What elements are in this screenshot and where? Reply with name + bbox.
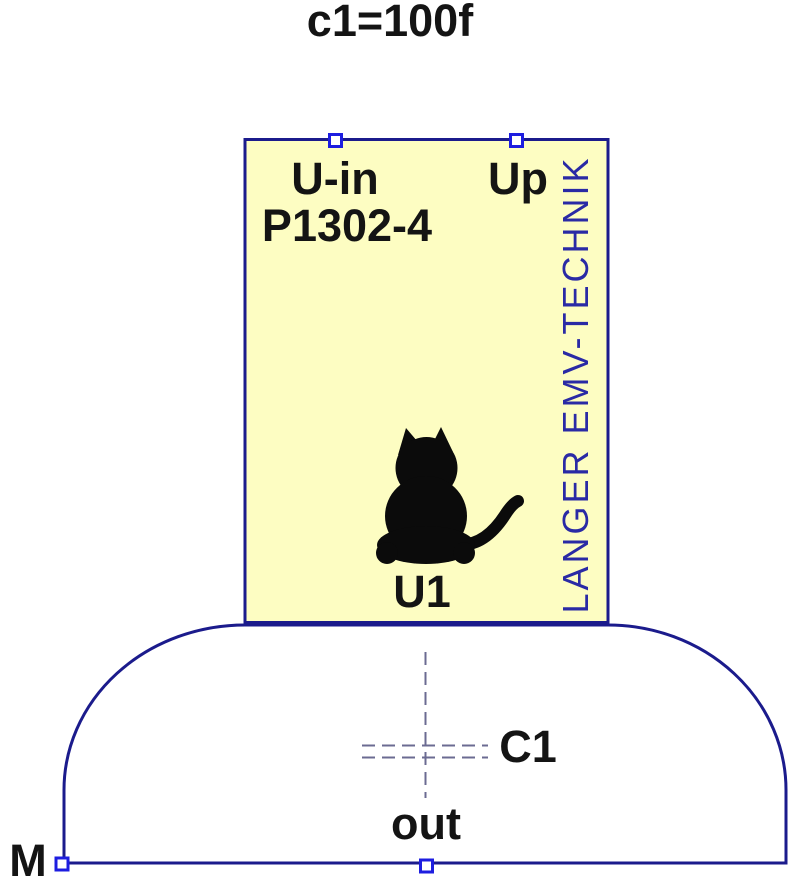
- pin-ground-m[interactable]: [56, 858, 68, 870]
- pin-up[interactable]: [511, 135, 523, 147]
- pin-out[interactable]: [421, 860, 433, 872]
- input-pin-label: U-in: [291, 156, 378, 201]
- brand-vertical-text: LANGER EMV-TECHNIK: [557, 155, 595, 614]
- value-annotation[interactable]: c1=100f: [307, 0, 473, 43]
- out-net-label[interactable]: out: [391, 801, 461, 846]
- capacitor-designator[interactable]: C1: [499, 724, 557, 769]
- pin-u-in[interactable]: [330, 135, 342, 147]
- schematic-canvas: c1=100f U-in Up P1302-4 U1 LANGER EMV-TE…: [0, 0, 794, 886]
- schematic-graphics: [0, 0, 794, 886]
- part-number-label: P1302-4: [262, 203, 432, 248]
- output-pin-label: Up: [488, 156, 548, 201]
- ground-net-label[interactable]: M: [9, 838, 47, 883]
- component-designator[interactable]: U1: [393, 569, 451, 614]
